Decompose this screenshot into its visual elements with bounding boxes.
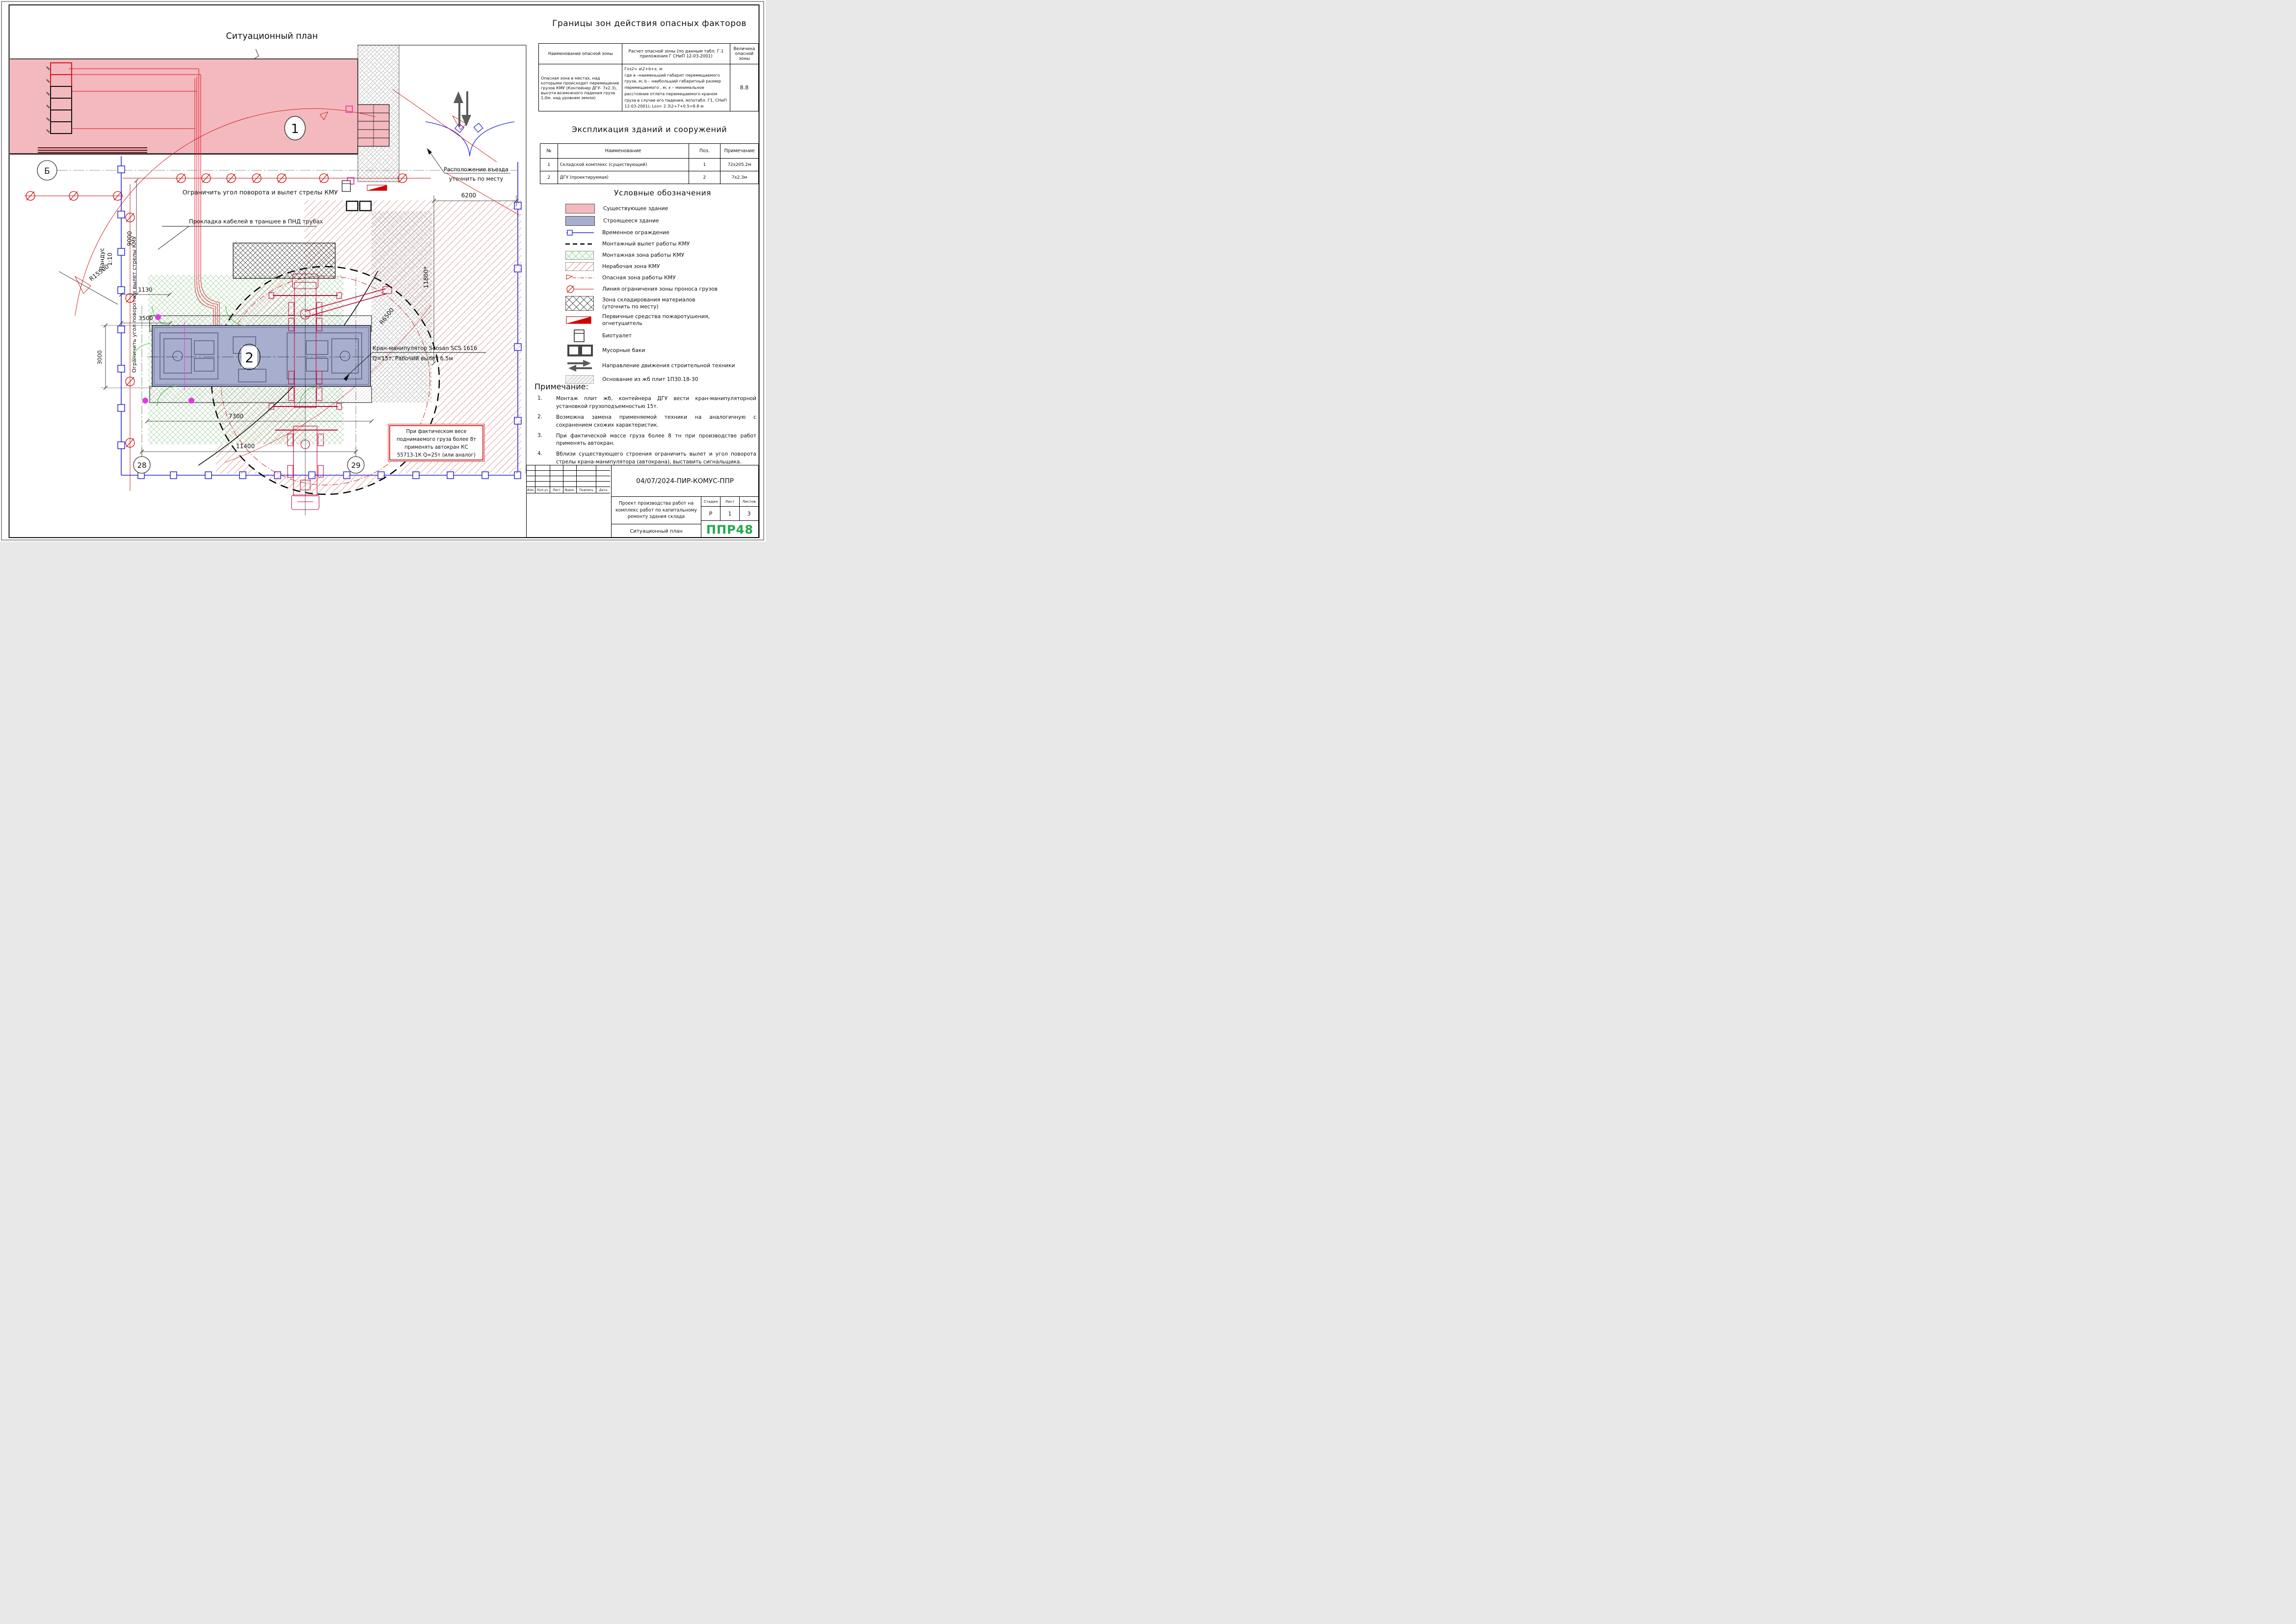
notes: Примечание: 1. Монтаж плит жб, контейнер… — [534, 382, 756, 469]
fire-equipment-swatch — [565, 314, 594, 326]
expl-col-note: Примечание — [721, 144, 759, 159]
position-bubble-1: 1 — [285, 116, 305, 140]
traffic-direction-swatch — [565, 359, 594, 373]
stamp-col-podpis: Подпись — [577, 487, 596, 493]
utility-dot-1 — [155, 314, 161, 320]
legend-item: Зона складирования материалов (уточнить … — [565, 296, 760, 311]
list-item: 2. Возможна замена применяемой техники н… — [534, 414, 756, 430]
revision-stamp: Изм. Кол.уч Лист №док. Подпись Дата — [527, 465, 612, 537]
under-construction-swatch — [565, 216, 595, 226]
dim-3000: 3000 — [96, 350, 103, 364]
limit-note-horizontal: Ограничить угол поворота и вылет стрелы … — [183, 189, 338, 196]
hazard-col-name: Наименование опасной зоны — [539, 44, 622, 64]
expl-col-name: Наименование — [558, 144, 689, 159]
entrance-label: Расположение въезда уточнить по месту — [427, 148, 510, 182]
plan-title: Ситуационный план — [226, 31, 318, 41]
legend-item: Мусорные баки — [565, 345, 760, 356]
document-number: 04/07/2024-ПИР-КОМУС-ППР — [612, 465, 758, 497]
svg-text:поднимаемого груза более 8т: поднимаемого груза более 8т — [397, 437, 476, 442]
legend-item: Направление движения строительной техник… — [565, 359, 760, 373]
hazard-name-cell: Опасная зона в местах, над которыми прои… — [539, 64, 622, 111]
non-working-zone-swatch — [565, 262, 594, 271]
svg-text:Расположение въезда: Расположение въезда — [444, 166, 508, 173]
list-item: 4. Вблизи существующего строения огранич… — [534, 451, 756, 466]
project-description: Проект производства работ на комплекс ра… — [612, 497, 701, 524]
svg-text:При фактическом весе: При фактическом весе — [406, 429, 467, 434]
legend-item: Монтажная зона работы КМУ — [565, 251, 760, 260]
svg-text:28: 28 — [137, 461, 146, 470]
list-header: Лист — [721, 497, 740, 506]
fence-swatch — [565, 228, 594, 237]
explication-table: № Наименование Поз. Примечание 1 Складск… — [540, 143, 759, 184]
existing-building-swatch — [565, 204, 595, 214]
existing-building — [10, 59, 358, 154]
legend-item: Биотуалет — [565, 329, 760, 342]
svg-text:Б: Б — [44, 166, 50, 176]
svg-text:29: 29 — [351, 461, 360, 470]
list-item: 1. Монтаж плит жб, контейнера ДГУ вести … — [534, 395, 756, 411]
stage-header: Стадия — [701, 497, 721, 506]
dim-3500: 3500 — [138, 315, 153, 322]
legend-item: Нерабочая зона КМУ — [565, 262, 760, 271]
dim-1130: 1130 — [138, 286, 152, 293]
warning-box: При фактическом весе поднимаемого груза … — [388, 424, 484, 461]
svg-text:1: 1 — [291, 122, 299, 136]
assembly-zone-swat​ch — [565, 251, 594, 260]
fire-extinguisher-icon — [367, 185, 387, 190]
utility-dot-2 — [142, 398, 148, 404]
storage-zone-swatch — [565, 296, 594, 311]
drawing-sheet: Ситуационный план — [0, 0, 766, 541]
dim-7300: 7300 — [229, 413, 244, 420]
storage-zone — [233, 243, 335, 278]
entrance-gate — [393, 89, 519, 215]
explication-title: Экспликация зданий и сооружений — [540, 125, 759, 134]
stamp-col-koluch: Кол.уч — [535, 487, 550, 493]
biotoilet-icon — [342, 181, 350, 191]
position-bubble-2: 2 — [239, 344, 260, 370]
title-block: Изм. Кол.уч Лист №док. Подпись Дата 04/0… — [526, 465, 759, 538]
hazard-col-calc: Расчет опасной зоны (по данным табл. Г.1… — [622, 44, 730, 64]
svg-text:Пандус: Пандус — [99, 248, 106, 271]
legend-item: Монтажный вылет работы КМУ — [565, 240, 760, 248]
stamp-col-ndok: №док. — [563, 487, 577, 493]
legend-item: Линия ограничения зоны проноса грузов — [565, 285, 760, 294]
hazard-value-cell: 8.8 — [730, 64, 758, 111]
hazard-table-title: Границы зон действия опасных факторов — [540, 19, 759, 28]
trash-bins-swatch — [565, 345, 594, 356]
legend: Существующее здание Строящееся здание Вр… — [565, 204, 760, 386]
svg-text:применять автокран КС: применять автокран КС — [404, 445, 468, 450]
dim-11400: 11400 — [236, 443, 255, 450]
expl-col-num: № — [540, 144, 558, 159]
legend-item: Первичные средства пожаротушения, огнету… — [565, 313, 760, 327]
danger-zone-swatch — [565, 273, 594, 282]
utility-dot-3 — [188, 398, 194, 404]
assembly-reach-swatch — [565, 240, 594, 248]
sheets-total: 3 — [740, 507, 758, 520]
listov-header: Листов — [740, 497, 758, 506]
company-logo: ППР48 — [701, 521, 758, 538]
table-row: 1 Складской комплекс (существующий) 1 72… — [540, 159, 759, 171]
sheet-number: 1 — [721, 507, 740, 520]
hazard-table: Наименование опасной зоны Расчет опасной… — [538, 43, 759, 111]
table-row: 2 ДГУ (проектируемая) 2 7х2.3м — [540, 171, 759, 184]
svg-text:55713-1К Q=25т (или аналог): 55713-1К Q=25т (или аналог) — [397, 453, 476, 458]
hazard-col-value: Величина опасной зоны — [730, 44, 758, 64]
hazard-calc-cell: Гоз2= а\2+b+х, м где а –наименьший габар… — [622, 64, 730, 111]
dim-6200: 6200 — [461, 192, 477, 199]
stage-value: Р — [701, 507, 721, 520]
svg-text:Прокладка кабелей в траншее в: Прокладка кабелей в траншее в ПНД трубах — [189, 218, 323, 225]
stamp-col-data: Дата — [596, 487, 610, 493]
sheet-title: Ситуационный план — [612, 524, 701, 538]
carry-limit-swatch — [565, 285, 594, 294]
notes-heading: Примечание: — [534, 382, 756, 391]
svg-text:Q=15т. Рабочий вылет 6.5м: Q=15т. Рабочий вылет 6.5м — [373, 355, 453, 362]
list-item: 3. При фактической массе груза более 8 т… — [534, 433, 756, 448]
svg-text:2: 2 — [245, 350, 254, 366]
legend-item: Существующее здание — [565, 204, 760, 214]
expl-col-pos: Поз. — [689, 144, 721, 159]
legend-item: Временное ограждение — [565, 228, 760, 237]
legend-title: Условные обозначения — [565, 189, 760, 197]
legend-item: Строящееся здание — [565, 216, 760, 226]
dim-9000: 9000 — [126, 231, 133, 246]
svg-text:уточнить по месту: уточнить по месту — [449, 176, 504, 182]
stamp-col-izm: Изм. — [527, 487, 535, 493]
legend-item: Опасная зона работы КМУ — [565, 273, 760, 282]
stairs — [358, 105, 389, 146]
svg-text:1:10: 1:10 — [107, 253, 113, 266]
dim-11800: 11800* — [423, 267, 429, 288]
stamp-col-list: Лист — [550, 487, 563, 493]
biotoilet-swatch — [565, 329, 594, 342]
svg-text:Кран-манипулятор Soosan SCS 16: Кран-манипулятор Soosan SCS 1616 — [373, 345, 477, 352]
